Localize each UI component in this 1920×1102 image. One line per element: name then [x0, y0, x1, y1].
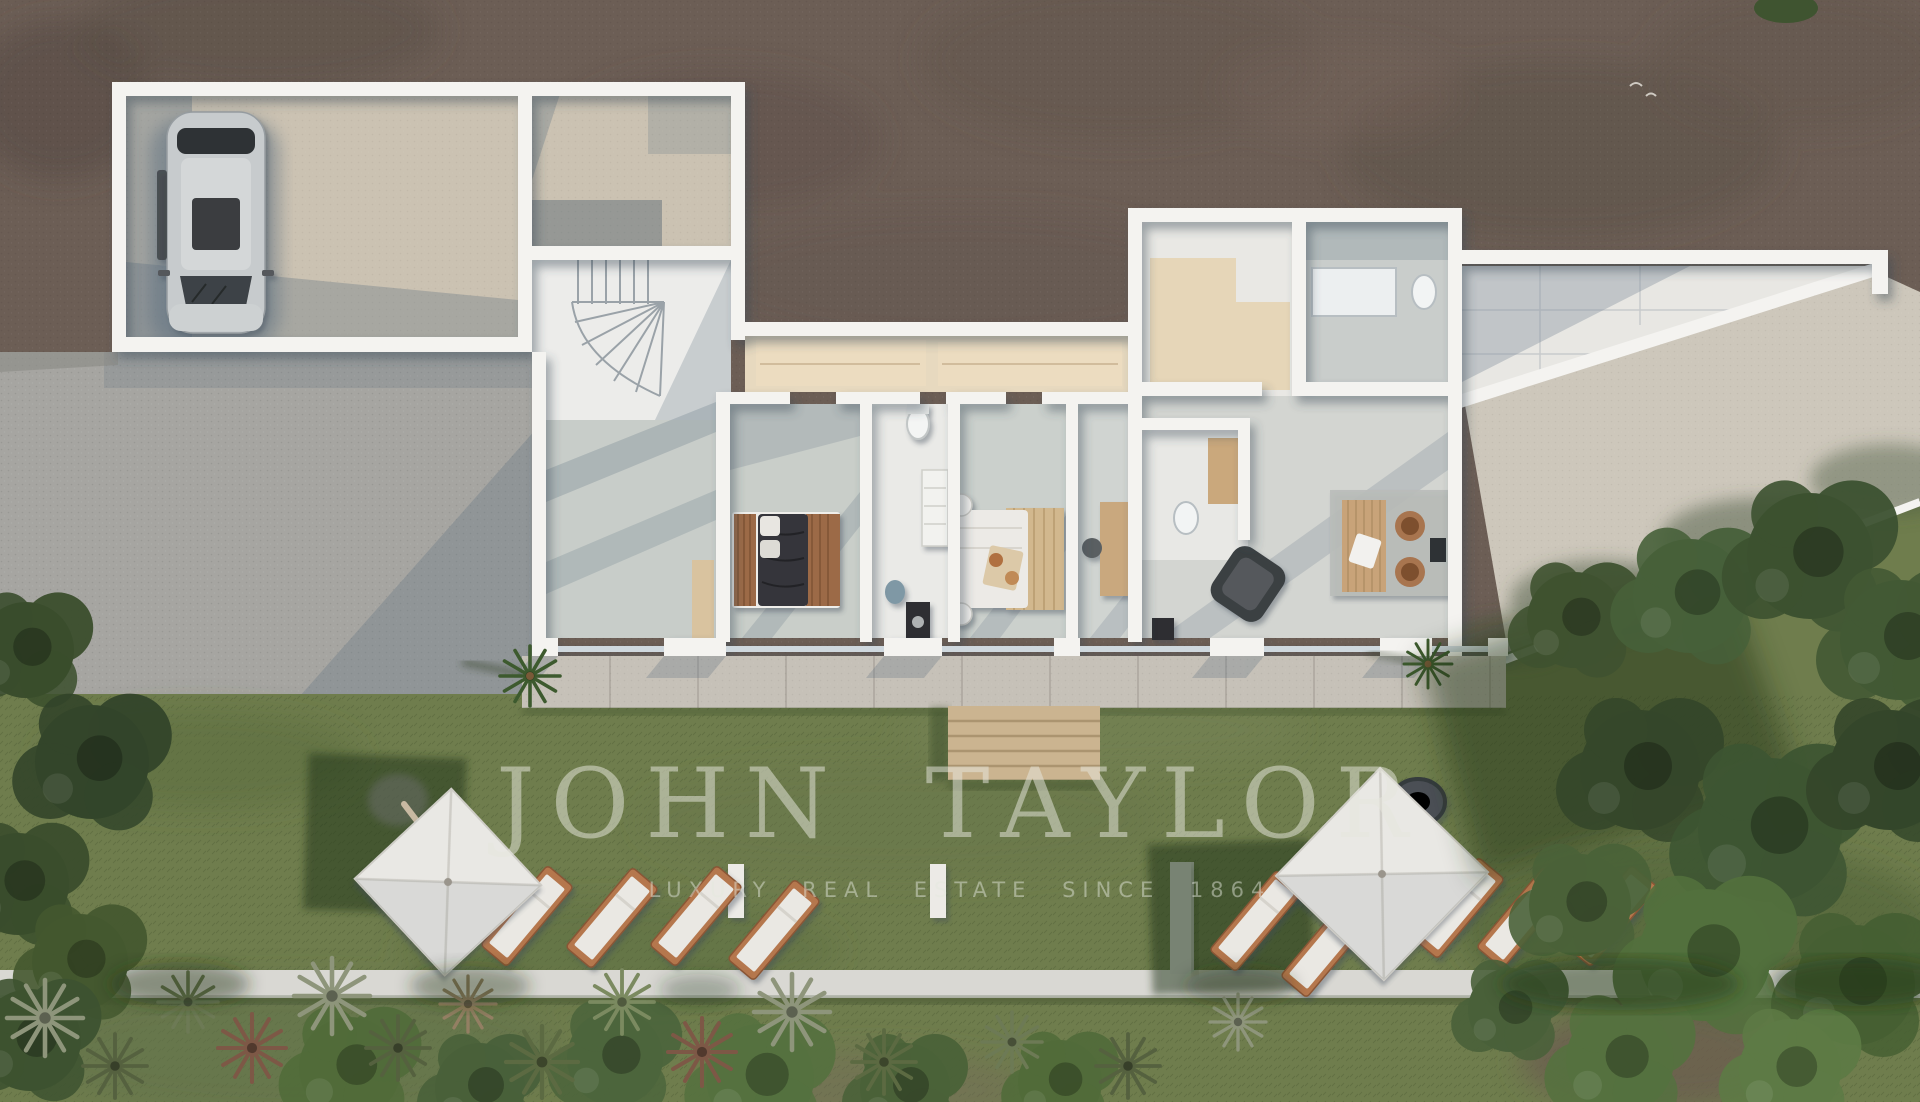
wall-ne-terrace: [1462, 250, 1886, 264]
toilet-wc: [1174, 502, 1198, 534]
wall-court-left: [112, 82, 126, 352]
garden-post-2: [930, 864, 946, 918]
pillar-5: [1210, 638, 1264, 656]
wall-wing-mid-1: [1142, 382, 1262, 396]
wall-main-top: [731, 322, 1142, 336]
wall-wing-west: [1128, 208, 1142, 642]
wall-bed2-east: [1066, 392, 1078, 642]
wall-stair-top: [532, 246, 745, 260]
wall-bed1-west: [716, 392, 730, 642]
bed-dark: [732, 512, 840, 608]
wall-wc-east: [1238, 430, 1250, 540]
car-windshield: [180, 276, 252, 306]
aerial-render: JOHN TAYLOR LUXURY REAL ESTATE SINCE 186…: [0, 0, 1920, 1102]
wall-court-divider: [518, 94, 532, 352]
scene-canvas: [0, 0, 1920, 1102]
wall-court-top: [112, 82, 745, 96]
toilet-ne: [1412, 275, 1436, 309]
pillar-4: [1054, 638, 1080, 656]
car: [150, 112, 280, 348]
car-mirror-right: [262, 270, 274, 276]
car-sunroof: [192, 198, 240, 250]
wall-bed1-east: [860, 392, 872, 642]
shower-tray: [1312, 268, 1396, 316]
wall-bath1-east: [948, 392, 960, 642]
hall-door: [692, 560, 714, 638]
wc-vanity: [1208, 438, 1240, 504]
car-open-door: [157, 170, 167, 260]
pillar-2: [664, 638, 726, 656]
wall-laundry-bath: [1292, 222, 1306, 396]
wall-wc-top: [1142, 418, 1250, 430]
wall-court-right: [731, 82, 745, 340]
car-rear-window: [177, 128, 255, 154]
wall-corridor-2: [836, 392, 920, 404]
wall-wing-mid-2: [1298, 382, 1448, 396]
wall-corridor-4: [1042, 392, 1142, 404]
pillar-3: [884, 638, 942, 656]
wall-court-bottom: [112, 337, 532, 352]
wall-wing-top: [1128, 208, 1462, 222]
wall-hall-west: [532, 352, 546, 642]
wall-corridor-1: [730, 392, 790, 404]
car-mirror-left: [158, 270, 170, 276]
car-hood: [169, 304, 263, 331]
deck-steps: [930, 706, 1100, 790]
wall-wing-east: [1448, 208, 1462, 660]
wall-ne-stub: [1872, 250, 1888, 294]
bed-light: [950, 494, 1064, 625]
wall-corridor-3: [946, 392, 1006, 404]
